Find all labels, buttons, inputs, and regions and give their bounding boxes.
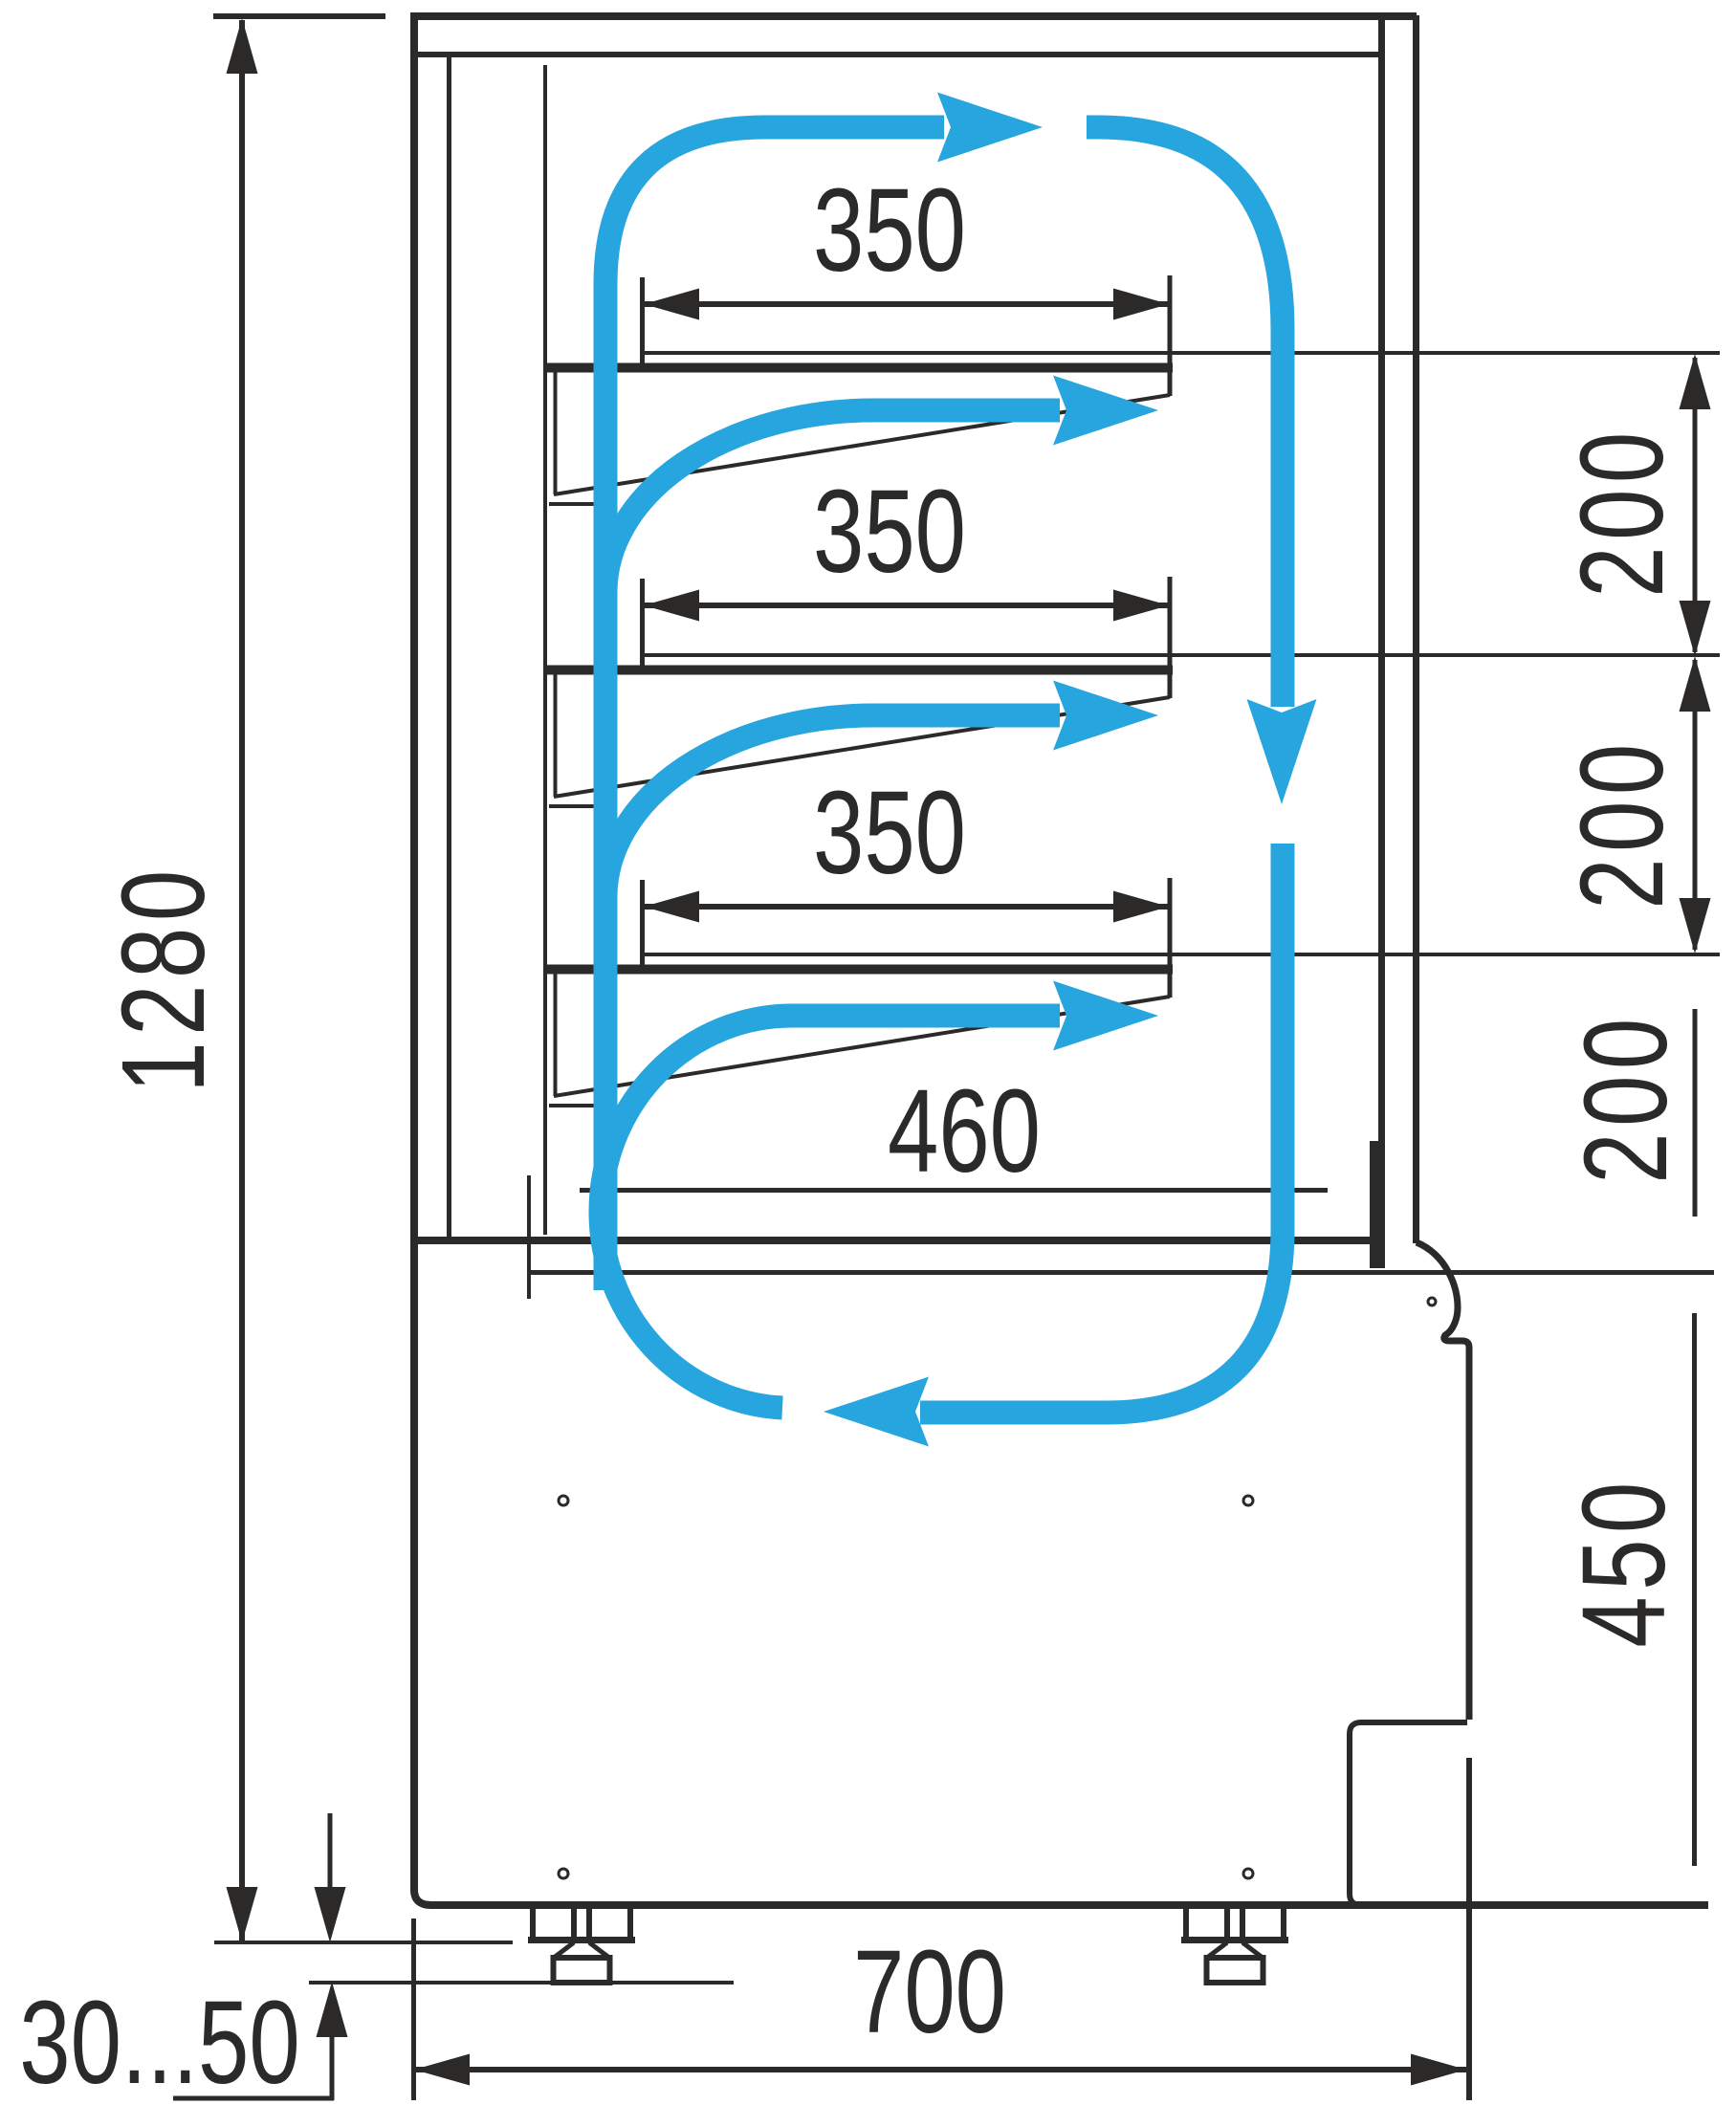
svg-text:200: 200: [1561, 1012, 1692, 1183]
svg-text:350: 350: [813, 467, 966, 598]
svg-text:1280: 1280: [99, 864, 230, 1092]
svg-text:350: 350: [813, 165, 966, 296]
svg-text:30...50: 30...50: [19, 1978, 299, 2109]
svg-text:200: 200: [1557, 737, 1688, 909]
svg-text:200: 200: [1557, 426, 1688, 597]
svg-text:350: 350: [813, 768, 966, 899]
svg-text:700: 700: [853, 1927, 1006, 2058]
svg-text:450: 450: [1559, 1476, 1690, 1647]
svg-text:460: 460: [888, 1066, 1041, 1197]
